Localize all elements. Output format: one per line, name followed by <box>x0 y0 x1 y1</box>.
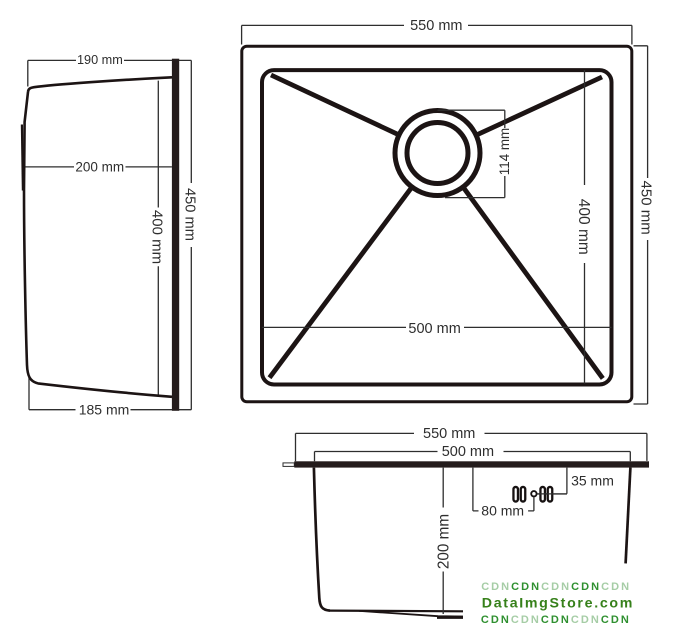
svg-text:35 mm: 35 mm <box>571 472 614 488</box>
svg-text:400 mm: 400 mm <box>575 199 592 255</box>
svg-text:DataImgStore.com: DataImgStore.com <box>482 596 634 612</box>
svg-text:80 mm: 80 mm <box>481 503 524 519</box>
svg-text:114 mm: 114 mm <box>497 128 512 175</box>
svg-text:450 mm: 450 mm <box>637 181 654 235</box>
svg-text:500 mm: 500 mm <box>442 444 494 460</box>
svg-text:550 mm: 550 mm <box>410 18 462 34</box>
svg-text:500 mm: 500 mm <box>408 321 460 337</box>
svg-text:400 mm: 400 mm <box>148 210 165 264</box>
svg-text:185 mm: 185 mm <box>79 402 130 418</box>
svg-text:CDNCDNCDNCDNCDN: CDNCDNCDNCDNCDN <box>481 581 631 593</box>
svg-text:200 mm: 200 mm <box>75 160 124 175</box>
svg-text:200 mm: 200 mm <box>436 514 453 569</box>
svg-text:190 mm: 190 mm <box>77 53 123 67</box>
svg-text:450 mm: 450 mm <box>182 188 198 241</box>
svg-text:CDNCDNCDNCDNCDN: CDNCDNCDNCDNCDN <box>481 614 631 626</box>
svg-text:550 mm: 550 mm <box>423 426 475 442</box>
